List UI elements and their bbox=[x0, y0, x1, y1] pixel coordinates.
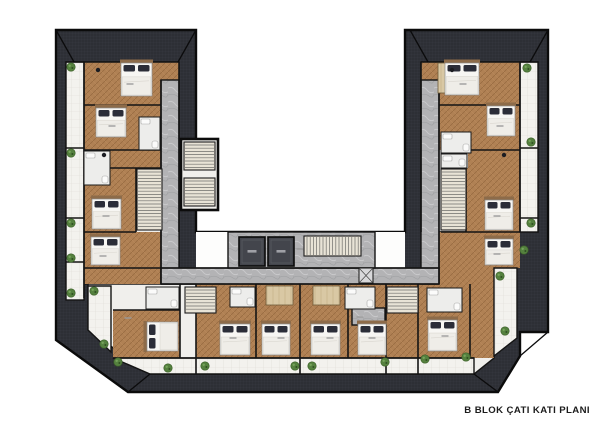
bed bbox=[120, 60, 153, 97]
elevator-label-mark bbox=[277, 250, 286, 253]
room-label-mark bbox=[297, 248, 304, 250]
pillow bbox=[490, 108, 500, 115]
toilet-fixture bbox=[367, 300, 373, 307]
plant bbox=[67, 254, 75, 262]
staircase bbox=[185, 287, 216, 313]
decor-dot bbox=[102, 153, 106, 157]
pillow bbox=[444, 322, 455, 329]
pillow bbox=[314, 326, 325, 333]
pillow bbox=[431, 322, 442, 329]
plant bbox=[67, 289, 75, 297]
plant bbox=[164, 364, 172, 372]
pillow bbox=[107, 239, 118, 246]
bathroom bbox=[84, 151, 110, 185]
pillow bbox=[374, 326, 384, 333]
plant bbox=[421, 355, 429, 363]
plan-caption: B BLOK ÇATI KATI PLANI bbox=[464, 405, 590, 416]
pillow bbox=[99, 110, 110, 117]
wardrobe bbox=[266, 286, 293, 305]
bed bbox=[90, 234, 121, 266]
sink-fixture bbox=[232, 289, 241, 294]
blanket bbox=[486, 213, 512, 230]
room-label-mark bbox=[357, 316, 364, 318]
room-label-mark bbox=[494, 215, 501, 217]
sink-fixture bbox=[443, 156, 452, 161]
pillow bbox=[501, 202, 511, 209]
bed bbox=[427, 317, 458, 352]
sink-fixture bbox=[443, 134, 452, 139]
left-balcony bbox=[66, 62, 84, 300]
staircase bbox=[304, 236, 361, 256]
pillow bbox=[149, 338, 156, 349]
pillow bbox=[237, 326, 248, 333]
floor-plan-image: B BLOK ÇATI KATI PLANI bbox=[0, 0, 600, 424]
plant bbox=[201, 362, 209, 370]
wardrobe bbox=[313, 286, 340, 305]
room-label-mark bbox=[497, 125, 504, 127]
room-label-mark bbox=[127, 83, 134, 85]
pillow bbox=[149, 325, 156, 336]
pillow bbox=[361, 326, 371, 333]
bed bbox=[95, 105, 127, 138]
room-label-mark bbox=[369, 337, 376, 339]
room-label-mark bbox=[327, 337, 334, 339]
bed bbox=[144, 321, 179, 352]
toilet-fixture bbox=[152, 141, 158, 148]
pillow bbox=[265, 326, 275, 333]
decor-dot bbox=[450, 68, 454, 72]
bathroom bbox=[345, 287, 375, 309]
staircase bbox=[441, 169, 466, 230]
courtyard-sliver-left bbox=[196, 232, 228, 268]
room-label-mark bbox=[442, 335, 449, 337]
bathroom bbox=[146, 287, 179, 309]
staircase bbox=[137, 169, 162, 230]
bathroom bbox=[230, 287, 255, 307]
pillow bbox=[488, 202, 498, 209]
right-balcony bbox=[520, 62, 538, 232]
blanket bbox=[221, 337, 249, 354]
blanket bbox=[486, 250, 512, 264]
pillow bbox=[223, 326, 234, 333]
pillow bbox=[108, 201, 119, 208]
blanket bbox=[446, 76, 478, 94]
courtyard-sliver-right bbox=[375, 232, 405, 268]
plant bbox=[114, 358, 122, 366]
plant bbox=[496, 272, 504, 280]
blanket bbox=[359, 337, 385, 354]
room-label-mark bbox=[494, 253, 501, 255]
plant bbox=[520, 246, 528, 254]
bathroom bbox=[139, 117, 160, 150]
pillow bbox=[124, 65, 136, 72]
room-label-mark bbox=[103, 215, 110, 217]
pillow bbox=[503, 108, 513, 115]
plant bbox=[67, 63, 75, 71]
room-label-mark bbox=[100, 255, 107, 257]
sink-fixture bbox=[148, 289, 157, 294]
pillow bbox=[488, 241, 498, 248]
plant bbox=[291, 362, 299, 370]
plant bbox=[381, 358, 389, 366]
blanket bbox=[488, 119, 514, 136]
bed bbox=[261, 321, 291, 356]
bed bbox=[486, 103, 516, 137]
bed bbox=[444, 60, 480, 96]
sink-fixture bbox=[429, 290, 438, 295]
pillow bbox=[278, 326, 288, 333]
pillow bbox=[94, 239, 105, 246]
bed bbox=[91, 196, 122, 230]
sink-fixture bbox=[86, 153, 95, 158]
bed bbox=[484, 197, 514, 231]
room-label-mark bbox=[278, 337, 285, 339]
elevator bbox=[268, 237, 294, 266]
decor-dot bbox=[502, 153, 506, 157]
bed bbox=[484, 236, 514, 266]
room-label-mark bbox=[230, 337, 237, 339]
toilet-fixture bbox=[102, 176, 108, 183]
sink-fixture bbox=[347, 289, 356, 294]
staircase bbox=[387, 287, 418, 313]
bathroom bbox=[427, 288, 462, 312]
toilet-fixture bbox=[459, 159, 465, 166]
room-label-mark bbox=[109, 125, 116, 127]
plant bbox=[90, 287, 98, 295]
bed bbox=[310, 321, 341, 356]
pillow bbox=[138, 65, 150, 72]
sink-fixture bbox=[141, 119, 150, 124]
pillow bbox=[327, 326, 338, 333]
plant bbox=[67, 149, 75, 157]
blanket bbox=[160, 323, 177, 350]
pillow bbox=[113, 110, 124, 117]
bathroom bbox=[441, 132, 471, 153]
room-label-mark bbox=[125, 317, 132, 319]
elevator bbox=[239, 237, 265, 266]
pillow bbox=[464, 65, 477, 72]
blanket bbox=[312, 337, 339, 354]
room-label-mark bbox=[460, 83, 467, 85]
plant bbox=[462, 353, 470, 361]
toilet-fixture bbox=[247, 298, 253, 305]
blanket bbox=[122, 77, 151, 95]
elevator-label-mark bbox=[248, 250, 257, 253]
decor-dot bbox=[96, 68, 100, 72]
plant bbox=[523, 64, 531, 72]
pillow bbox=[95, 201, 106, 208]
floor-plan-page: B BLOK ÇATI KATI PLANI bbox=[0, 0, 600, 424]
toilet-fixture bbox=[454, 303, 460, 310]
plant bbox=[527, 138, 535, 146]
staircase bbox=[184, 142, 215, 170]
plant bbox=[308, 362, 316, 370]
pillow bbox=[501, 241, 511, 248]
staircase bbox=[184, 178, 215, 206]
toilet-fixture bbox=[171, 300, 177, 307]
bathroom bbox=[441, 154, 467, 168]
plant bbox=[67, 219, 75, 227]
shaft bbox=[359, 268, 373, 283]
plant bbox=[501, 327, 509, 335]
blanket bbox=[97, 120, 125, 136]
plant bbox=[100, 340, 108, 348]
blanket bbox=[263, 337, 289, 354]
blanket bbox=[93, 212, 120, 229]
toilet-fixture bbox=[463, 144, 469, 151]
plant bbox=[527, 219, 535, 227]
